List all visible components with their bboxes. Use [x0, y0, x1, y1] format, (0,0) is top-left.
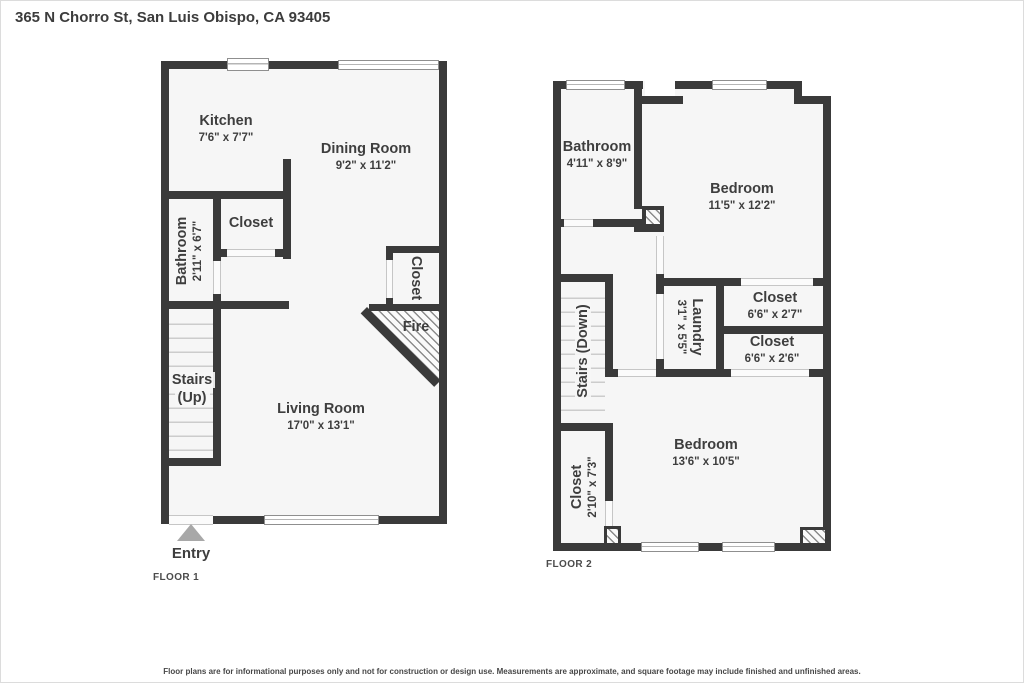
floor2-tag: FLOOR 2	[546, 559, 592, 570]
room-dims: 2'10" x 7'3"	[587, 456, 599, 517]
wall	[553, 219, 564, 227]
room-label-bathroom: Bathroom 2'11" x 6'7"	[174, 217, 204, 285]
window	[566, 80, 625, 90]
entry-arrow-icon	[177, 524, 205, 541]
wall	[161, 191, 291, 199]
wall	[161, 458, 221, 466]
room-name: (Up)	[175, 390, 210, 406]
door-opening	[656, 291, 664, 361]
room-dims: 2'11" x 6'7"	[192, 221, 204, 282]
room-label-closet: Closet	[220, 215, 282, 232]
window	[264, 515, 379, 525]
room-name: Fire	[393, 319, 439, 336]
room-dims: 13'6" x 10'5"	[641, 456, 771, 469]
door-opening	[213, 261, 221, 294]
room-label-closet2: Closet 6'6" x 2'6"	[712, 334, 832, 366]
room-label-bedroom1: Bedroom 11'5" x 12'2"	[677, 181, 807, 213]
wall	[439, 61, 447, 524]
floor1-tag: FLOOR 1	[153, 572, 199, 583]
wall	[605, 431, 613, 501]
room-label-kitchen: Kitchen 7'6" x 7'7"	[166, 113, 286, 145]
wall	[634, 96, 683, 104]
wall	[553, 274, 613, 282]
room-dims: 17'0" x 13'1"	[256, 420, 386, 433]
wall	[369, 304, 447, 311]
door-opening	[731, 369, 809, 377]
room-label-closet-right: Closet	[408, 256, 424, 300]
wall	[161, 301, 289, 309]
room-label-stairs-down: Stairs (Down)	[574, 301, 592, 400]
room-label-living: Living Room 17'0" x 13'1"	[256, 401, 386, 433]
window	[338, 60, 439, 70]
room-name: Living Room	[256, 401, 386, 418]
entry-label: Entry	[157, 545, 225, 562]
chimney-chase	[604, 526, 621, 546]
room-name: Bathroom	[174, 217, 190, 285]
wall	[809, 369, 823, 377]
address-title: 365 N Chorro St, San Luis Obispo, CA 934…	[15, 9, 330, 26]
room-dims: 4'11" x 8'9"	[537, 158, 657, 171]
room-label-closet1: Closet 6'6" x 2'7"	[715, 290, 835, 322]
room-name: Closet	[715, 290, 835, 307]
room-dims: 9'2" x 11'2"	[301, 160, 431, 173]
room-name: Closet	[712, 334, 832, 351]
chimney-chase	[800, 527, 828, 546]
room-name: Stairs (Down)	[575, 301, 591, 400]
wall	[386, 246, 393, 260]
door-opening	[386, 260, 393, 298]
wall	[386, 246, 447, 253]
room-label-laundry: Laundry 3'1" x 5'5"	[675, 298, 705, 355]
disclaimer-text: Floor plans are for informational purpos…	[1, 667, 1023, 676]
window	[227, 58, 269, 71]
door-opening	[605, 501, 613, 527]
room-name: Bathroom	[537, 139, 657, 156]
room-name: Closet	[569, 465, 585, 509]
wall	[716, 326, 823, 334]
room-name: Stairs	[169, 372, 215, 388]
room-dims: 6'6" x 2'6"	[712, 353, 832, 366]
window	[722, 542, 775, 552]
room-dims: 11'5" x 12'2"	[677, 200, 807, 213]
door-opening	[656, 236, 664, 276]
window	[712, 80, 767, 90]
room-label-closet3: Closet 2'10" x 7'3"	[569, 456, 599, 517]
room-label-dining: Dining Room 9'2" x 11'2"	[301, 141, 431, 173]
door-opening	[741, 278, 813, 286]
door-opening	[618, 369, 656, 377]
door-opening	[227, 249, 275, 257]
room-dims: 7'6" x 7'7"	[166, 132, 286, 145]
room-name: Bedroom	[677, 181, 807, 198]
room-name: Closet	[408, 256, 424, 300]
wall	[656, 278, 741, 286]
wall	[823, 96, 831, 551]
room-dims: 3'1" x 5'5"	[675, 300, 687, 355]
floor-plan-page: 365 N Chorro St, San Luis Obispo, CA 934…	[0, 0, 1024, 683]
wall	[275, 249, 291, 257]
wall	[656, 369, 731, 377]
door-opening	[564, 219, 593, 227]
wall	[634, 224, 664, 232]
wall	[553, 423, 613, 431]
wall	[283, 159, 291, 259]
room-name: Closet	[220, 215, 282, 232]
window	[641, 542, 699, 552]
wall	[213, 249, 227, 257]
wall	[813, 278, 823, 286]
fireplace-label: Fire	[393, 319, 439, 336]
wall	[605, 279, 613, 377]
room-name: Kitchen	[166, 113, 286, 130]
room-name: Laundry	[689, 298, 705, 355]
room-label-stairs-up: Stairs (Up)	[157, 371, 227, 408]
room-name: Dining Room	[301, 141, 431, 158]
room-label-bathroom2: Bathroom 4'11" x 8'9"	[537, 139, 657, 171]
wall	[656, 286, 664, 294]
room-name: Bedroom	[641, 437, 771, 454]
room-dims: 6'6" x 2'7"	[715, 309, 835, 322]
room-label-bedroom2: Bedroom 13'6" x 10'5"	[641, 437, 771, 469]
